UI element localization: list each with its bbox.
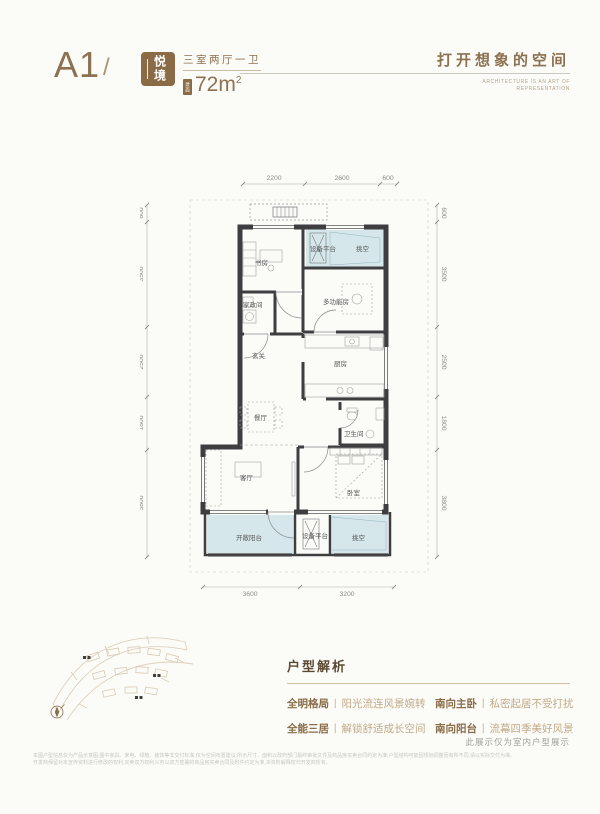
site-buildings [86,647,178,697]
dim-right-4: 1800 [440,415,447,430]
site-outline [53,636,193,720]
area-tag: 建面 [183,79,192,95]
windows [202,226,389,557]
brand-badge: 悦境 [141,52,175,86]
analysis-col-left: 全明格局丨阳光流连风景婉转 全能三居丨解锁舒适成长空间 [287,696,435,736]
dim-top-2: 2600 [334,175,349,182]
disclaimer: 本图户型信息仅为产品示意图,图中家具、家电、绿植、装饰等非交付标准,仅为空间布置… [33,753,572,767]
room-label-equip-bottom: 设备平台 [302,531,328,540]
analysis-item: 全明格局丨阳光流连风景婉转 [287,696,435,711]
analysis-title: 户型解析 [287,656,570,684]
dim-left-4: 1800 [140,415,145,430]
compass-icon [51,705,65,719]
dim-bottom-1: 3600 [242,591,257,598]
site-plan [35,612,215,737]
analysis-item: 南向阳台丨流幕四季美好风景 [435,721,570,736]
dim-right-3: 2500 [440,354,447,369]
room-label-multifunction: 多功能房 [323,297,349,306]
dim-left-3: 2500 [140,354,145,369]
header-divider [240,73,570,74]
site-highlight-buildings [83,656,161,699]
slogan-subtitle: ARCHITECTURE IS AN ART OF REPRESENTATION [482,79,570,92]
dim-left-2: 3500 [140,266,145,281]
plan-code: A1 / [54,44,111,86]
furniture [206,232,386,550]
analysis-section: 户型解析 全明格局丨阳光流连风景婉转 全能三居丨解锁舒适成长空间 南向主卧丨私密… [287,656,570,736]
unit-area-row: 建面 72m2 [183,74,261,95]
analysis-grid: 全明格局丨阳光流连风景婉转 全能三居丨解锁舒适成长空间 南向主卧丨私密起居不受打… [287,696,570,736]
room-label-void-bottom: 挑空 [352,533,366,542]
dim-top-3: 600 [382,175,394,182]
room-label-laundry: 家政间 [243,300,263,309]
room-label-bathroom: 卫生间 [344,429,364,438]
disclaimer-line-2: 开发商保留对本宣传资料进行修改的权利,买卖双方权利义务以双方签署的商品房买卖合同… [33,760,572,767]
analysis-item: 全能三居丨解锁舒适成长空间 [287,721,435,736]
dim-left-1: 600 [140,207,145,219]
walls [203,227,390,555]
room-label-living: 客厅 [240,473,254,482]
room-label-bedroom: 卧室 [347,488,361,497]
room-label-balcony: 开敞阳台 [236,533,262,542]
brand-badge-text: 悦境 [152,55,169,83]
analysis-col-right: 南向主卧丨私密起居不受打扰 南向阳台丨流幕四季美好风景 [435,696,570,736]
dim-right-2: 3500 [440,266,447,281]
room-label-dining: 餐厅 [254,413,268,422]
room-label-kitchen: 厨房 [334,359,347,368]
dim-right-5: 3800 [440,495,447,510]
floorplan-drawing: 2200 2600 600 3600 3200 600 3500 2500 18… [140,162,460,607]
unit-layout: 三室两厅一卫 [183,52,261,71]
unit-area: 72m2 [195,74,241,95]
dim-right-1: 600 [440,207,447,219]
plan-code-text: A1 [54,44,100,86]
plan-code-slash: / [103,54,111,82]
dim-bottom-2: 3200 [339,591,354,598]
display-note: 此展示仅为室内户型展示 [465,736,570,748]
slogan: 打开想象的空间 [437,49,570,70]
disclaimer-line-1: 本图户型信息仅为产品示意图,图中家具、家电、绿植、装饰等非交付标准,仅为空间布置… [33,753,572,760]
analysis-item: 南向主卧丨私密起居不受打扰 [435,696,570,711]
room-label-void-top: 挑空 [356,244,370,253]
room-label-foyer: 玄关 [252,351,266,360]
top-equipment-platform [250,204,327,220]
room-label-equip-top: 设备平台 [310,244,336,253]
dimension-labels: 2200 2600 600 3600 3200 600 3500 2500 18… [140,175,447,598]
dim-left-5: 3800 [140,495,145,510]
room-label-study: 书房 [255,258,268,267]
dim-top-1: 2200 [266,175,281,182]
